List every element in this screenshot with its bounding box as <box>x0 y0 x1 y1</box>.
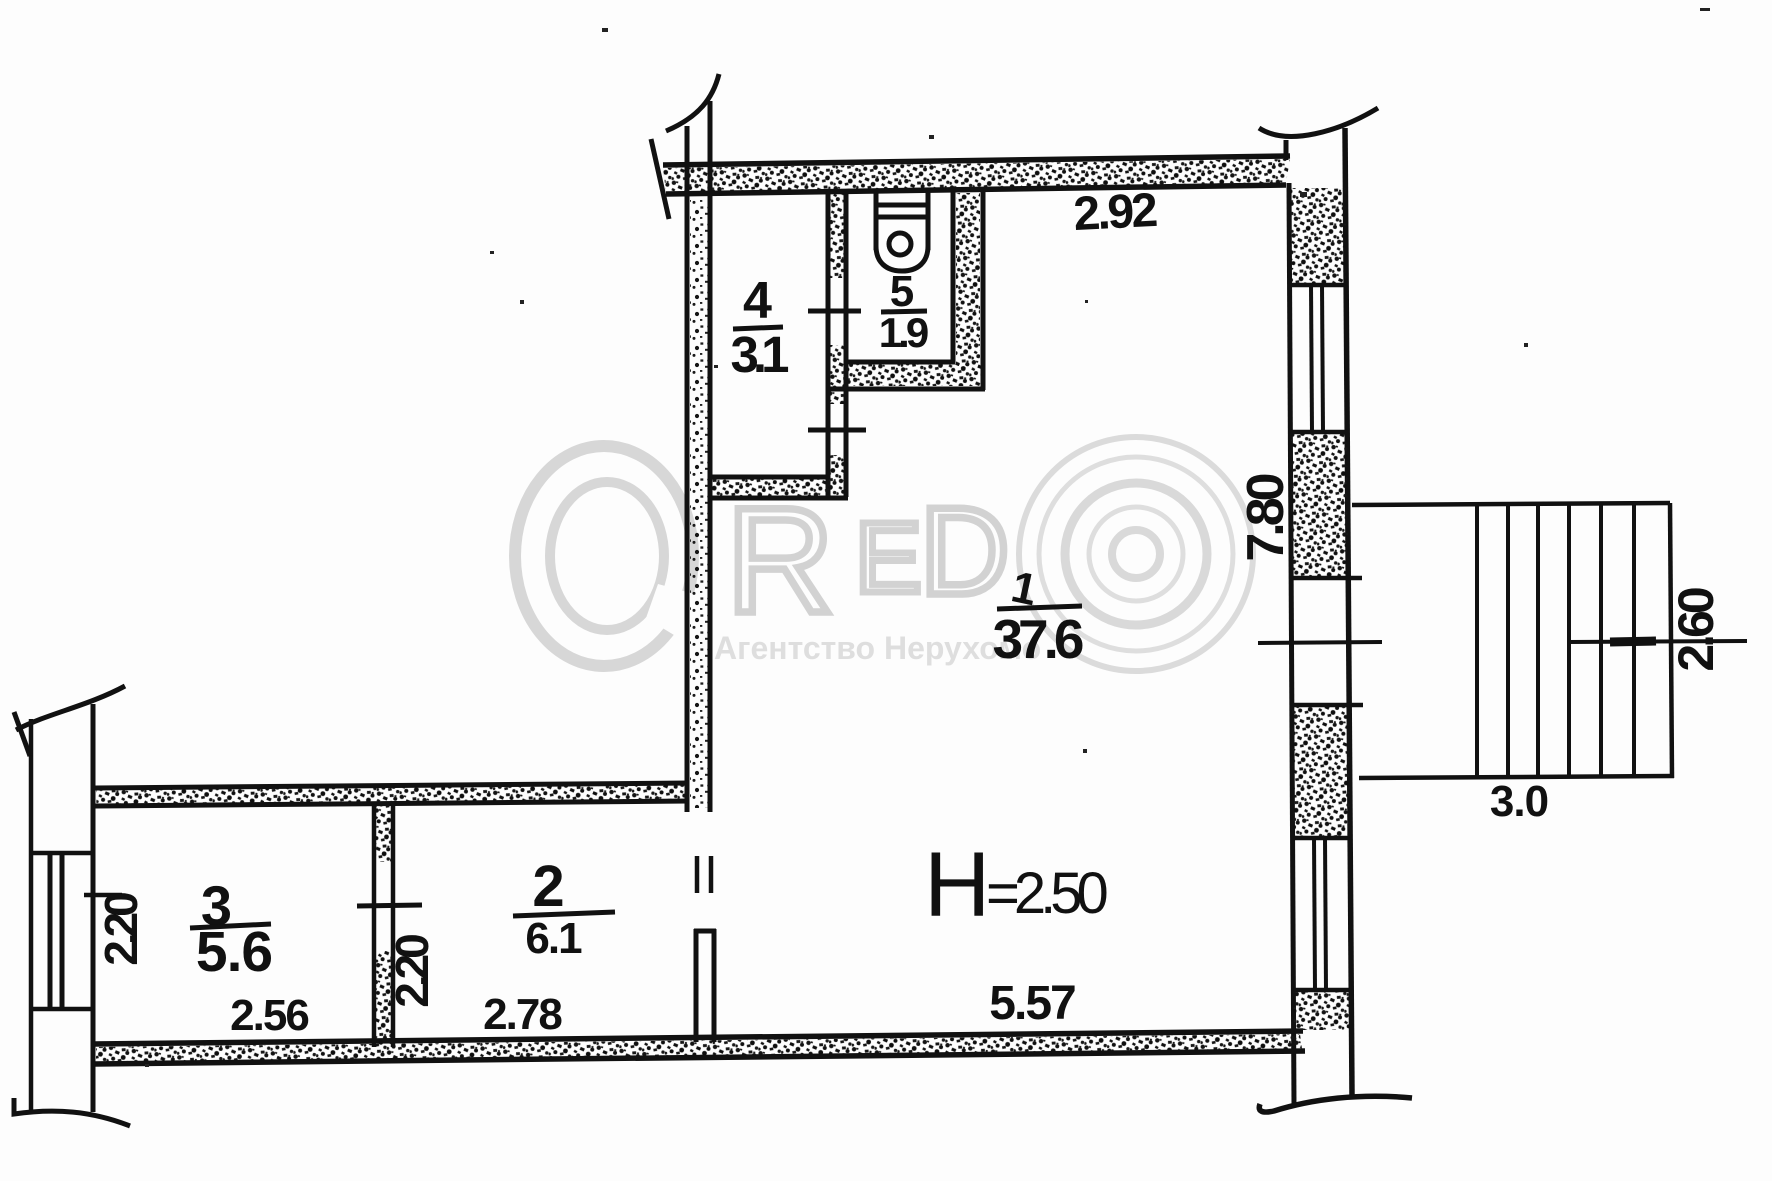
svg-text:2.20: 2.20 <box>386 935 438 1008</box>
svg-text:5.6: 5.6 <box>196 920 272 984</box>
svg-text:2: 2 <box>532 854 562 919</box>
svg-text:2.60: 2.60 <box>1668 588 1724 672</box>
svg-text:E: E <box>855 502 922 614</box>
svg-text:2.56: 2.56 <box>230 991 308 1040</box>
svg-text:3.0: 3.0 <box>1490 777 1548 826</box>
svg-text:5.57: 5.57 <box>989 977 1075 1030</box>
svg-text:R: R <box>726 476 834 644</box>
svg-text:2.92: 2.92 <box>1072 184 1157 241</box>
svg-text:7.80: 7.80 <box>1237 474 1295 561</box>
svg-text:4: 4 <box>743 272 772 330</box>
svg-text:=2.50: =2.50 <box>986 861 1106 926</box>
svg-text:1.9: 1.9 <box>879 309 928 356</box>
svg-text:2.20: 2.20 <box>95 893 147 966</box>
svg-text:2.78: 2.78 <box>483 990 562 1039</box>
svg-text:6.1: 6.1 <box>525 914 582 963</box>
svg-text:3.1: 3.1 <box>731 326 789 383</box>
svg-text:37.6: 37.6 <box>992 608 1082 670</box>
svg-text:D: D <box>920 483 1010 621</box>
svg-text:H: H <box>924 834 987 936</box>
